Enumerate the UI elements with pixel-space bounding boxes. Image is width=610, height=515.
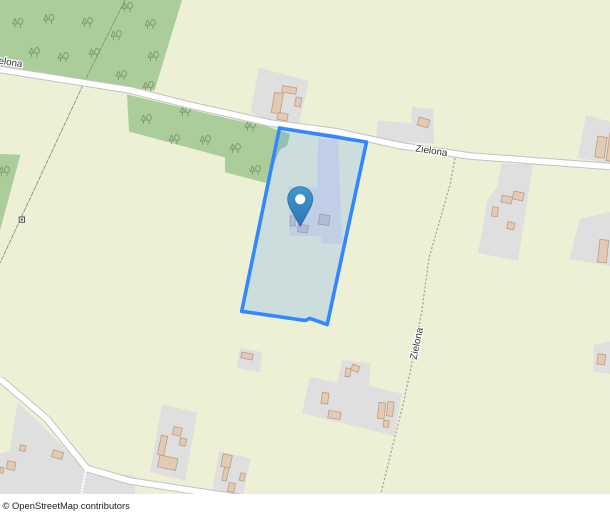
svg-text:© OpenStreetMap contributors: © OpenStreetMap contributors <box>3 500 131 511</box>
